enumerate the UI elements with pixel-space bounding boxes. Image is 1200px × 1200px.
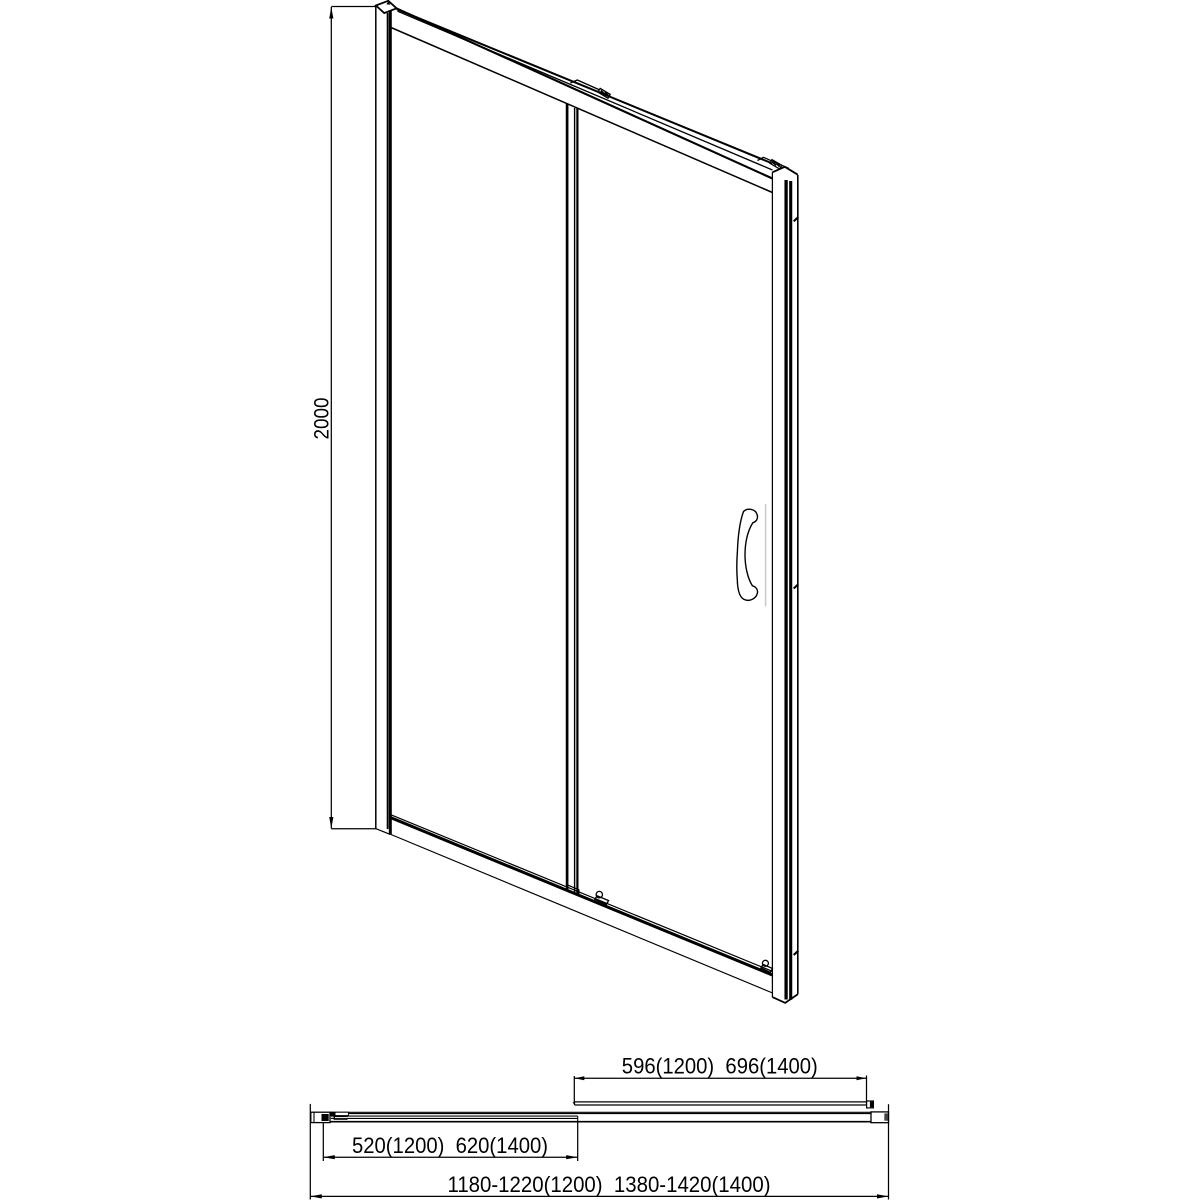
svg-text:1180-1220(1200) 1380-1420(140: 1180-1220(1200) 1380-1420(1400) [448, 1172, 771, 1197]
svg-text:520(1200) 620(1400): 520(1200) 620(1400) [352, 1133, 548, 1158]
svg-text:596(1200) 696(1400): 596(1200) 696(1400) [622, 1053, 818, 1078]
svg-text:2000: 2000 [310, 397, 334, 439]
